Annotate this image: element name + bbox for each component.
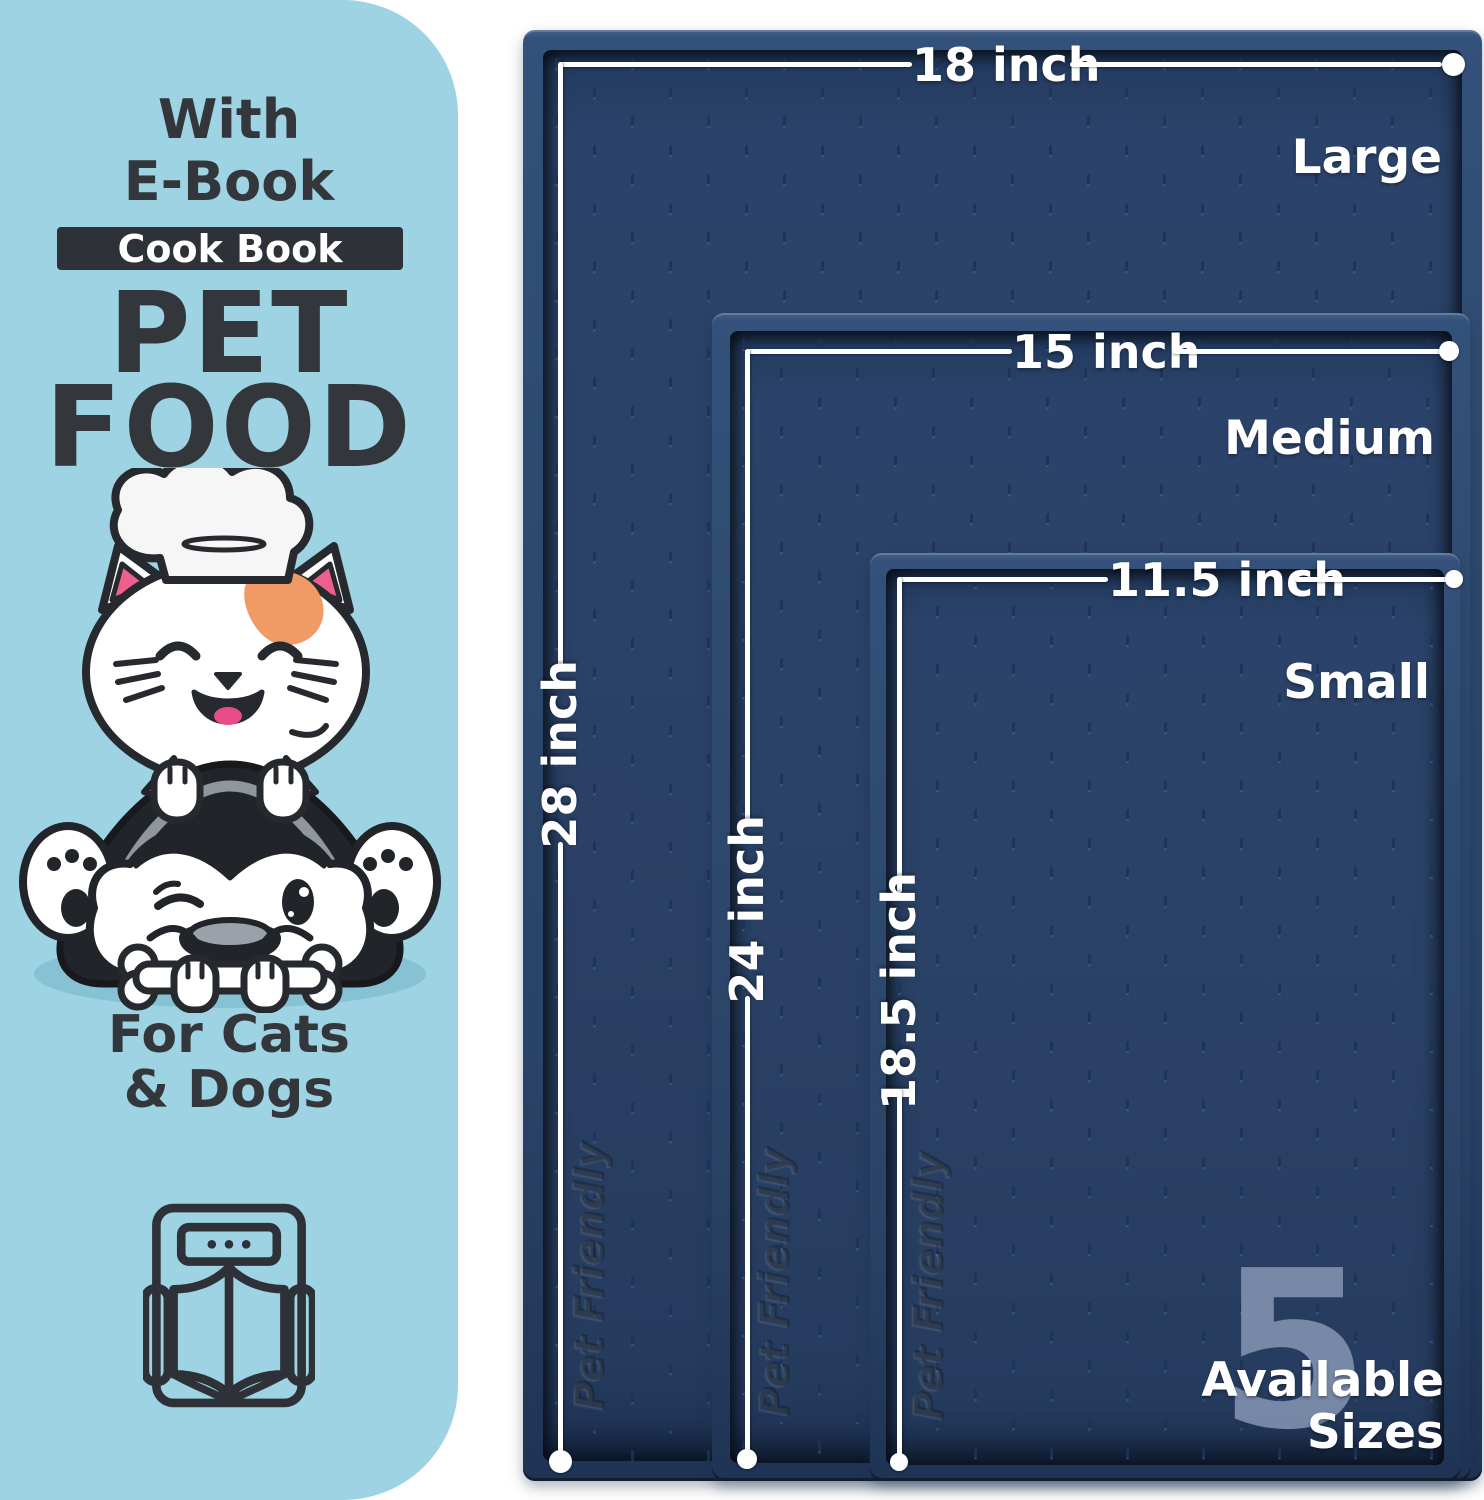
dimension-endpoint-dot [1445, 570, 1463, 588]
available-sizes-word2: Sizes [1144, 1405, 1444, 1460]
dimension-line-medium-height-bottom [745, 996, 750, 1453]
dimension-label-large-width: 18 inch [912, 38, 1070, 92]
dimension-line-small-width-right [1295, 577, 1452, 582]
dimension-line-large-height-bottom [558, 842, 563, 1452]
eyebrow-text-line2: E-Book [0, 150, 458, 213]
dimension-endpoint-dot [890, 1453, 908, 1471]
ebook-tablet-icon [143, 1198, 315, 1413]
size-name-small: Small [1210, 655, 1430, 710]
dimension-label-large-height: 28 inch [532, 666, 588, 842]
dimension-line-small-height-top [897, 577, 902, 893]
dimension-endpoint-dot [1442, 53, 1465, 76]
dimension-line-small-height-bottom [897, 1089, 902, 1457]
dimension-endpoint-dot [549, 1450, 572, 1473]
dimension-line-medium-height-top [745, 349, 750, 822]
embossed-brand-text: Pet Friendly [906, 1141, 952, 1421]
dimension-line-large-height-top [558, 62, 563, 666]
info-panel: With E-Book Cook Book PET FOOD [0, 0, 458, 1500]
dimension-label-medium-height: 24 inch [719, 824, 775, 994]
dimension-label-medium-width: 15 inch [1012, 325, 1172, 379]
dimension-label-small-width: 11.5 inch [1108, 553, 1295, 607]
product-size-diagram: With E-Book Cook Book PET FOOD [0, 0, 1484, 1500]
dimension-line-large-width-left [560, 62, 912, 67]
audience-text-line1: For Cats [0, 1005, 458, 1065]
mat-small: Pet Friendly 11.5 inch 18.5 inch Small 5… [870, 553, 1460, 1481]
embossed-brand-text: Pet Friendly [567, 1071, 613, 1411]
available-sizes-word1: Available [1144, 1353, 1444, 1408]
dimension-line-medium-width-left [747, 349, 1012, 354]
dimension-label-small-height: 18.5 inch [871, 895, 927, 1087]
cat-chef-husky-illustration [10, 468, 450, 1013]
size-name-medium: Medium [1175, 411, 1435, 466]
cookbook-badge-label: Cook Book [117, 227, 342, 271]
eyebrow-text-line1: With [0, 88, 458, 151]
embossed-brand-text: Pet Friendly [752, 1117, 798, 1417]
size-name-large: Large [1222, 130, 1442, 185]
dimension-endpoint-dot [737, 1449, 757, 1469]
cookbook-badge: Cook Book [57, 227, 403, 270]
dimension-line-medium-width-right [1172, 349, 1448, 354]
dimension-line-large-width-right [1070, 62, 1442, 67]
dimension-line-small-width-left [899, 577, 1108, 582]
dimension-endpoint-dot [1439, 341, 1459, 361]
audience-text-line2: & Dogs [0, 1060, 458, 1120]
